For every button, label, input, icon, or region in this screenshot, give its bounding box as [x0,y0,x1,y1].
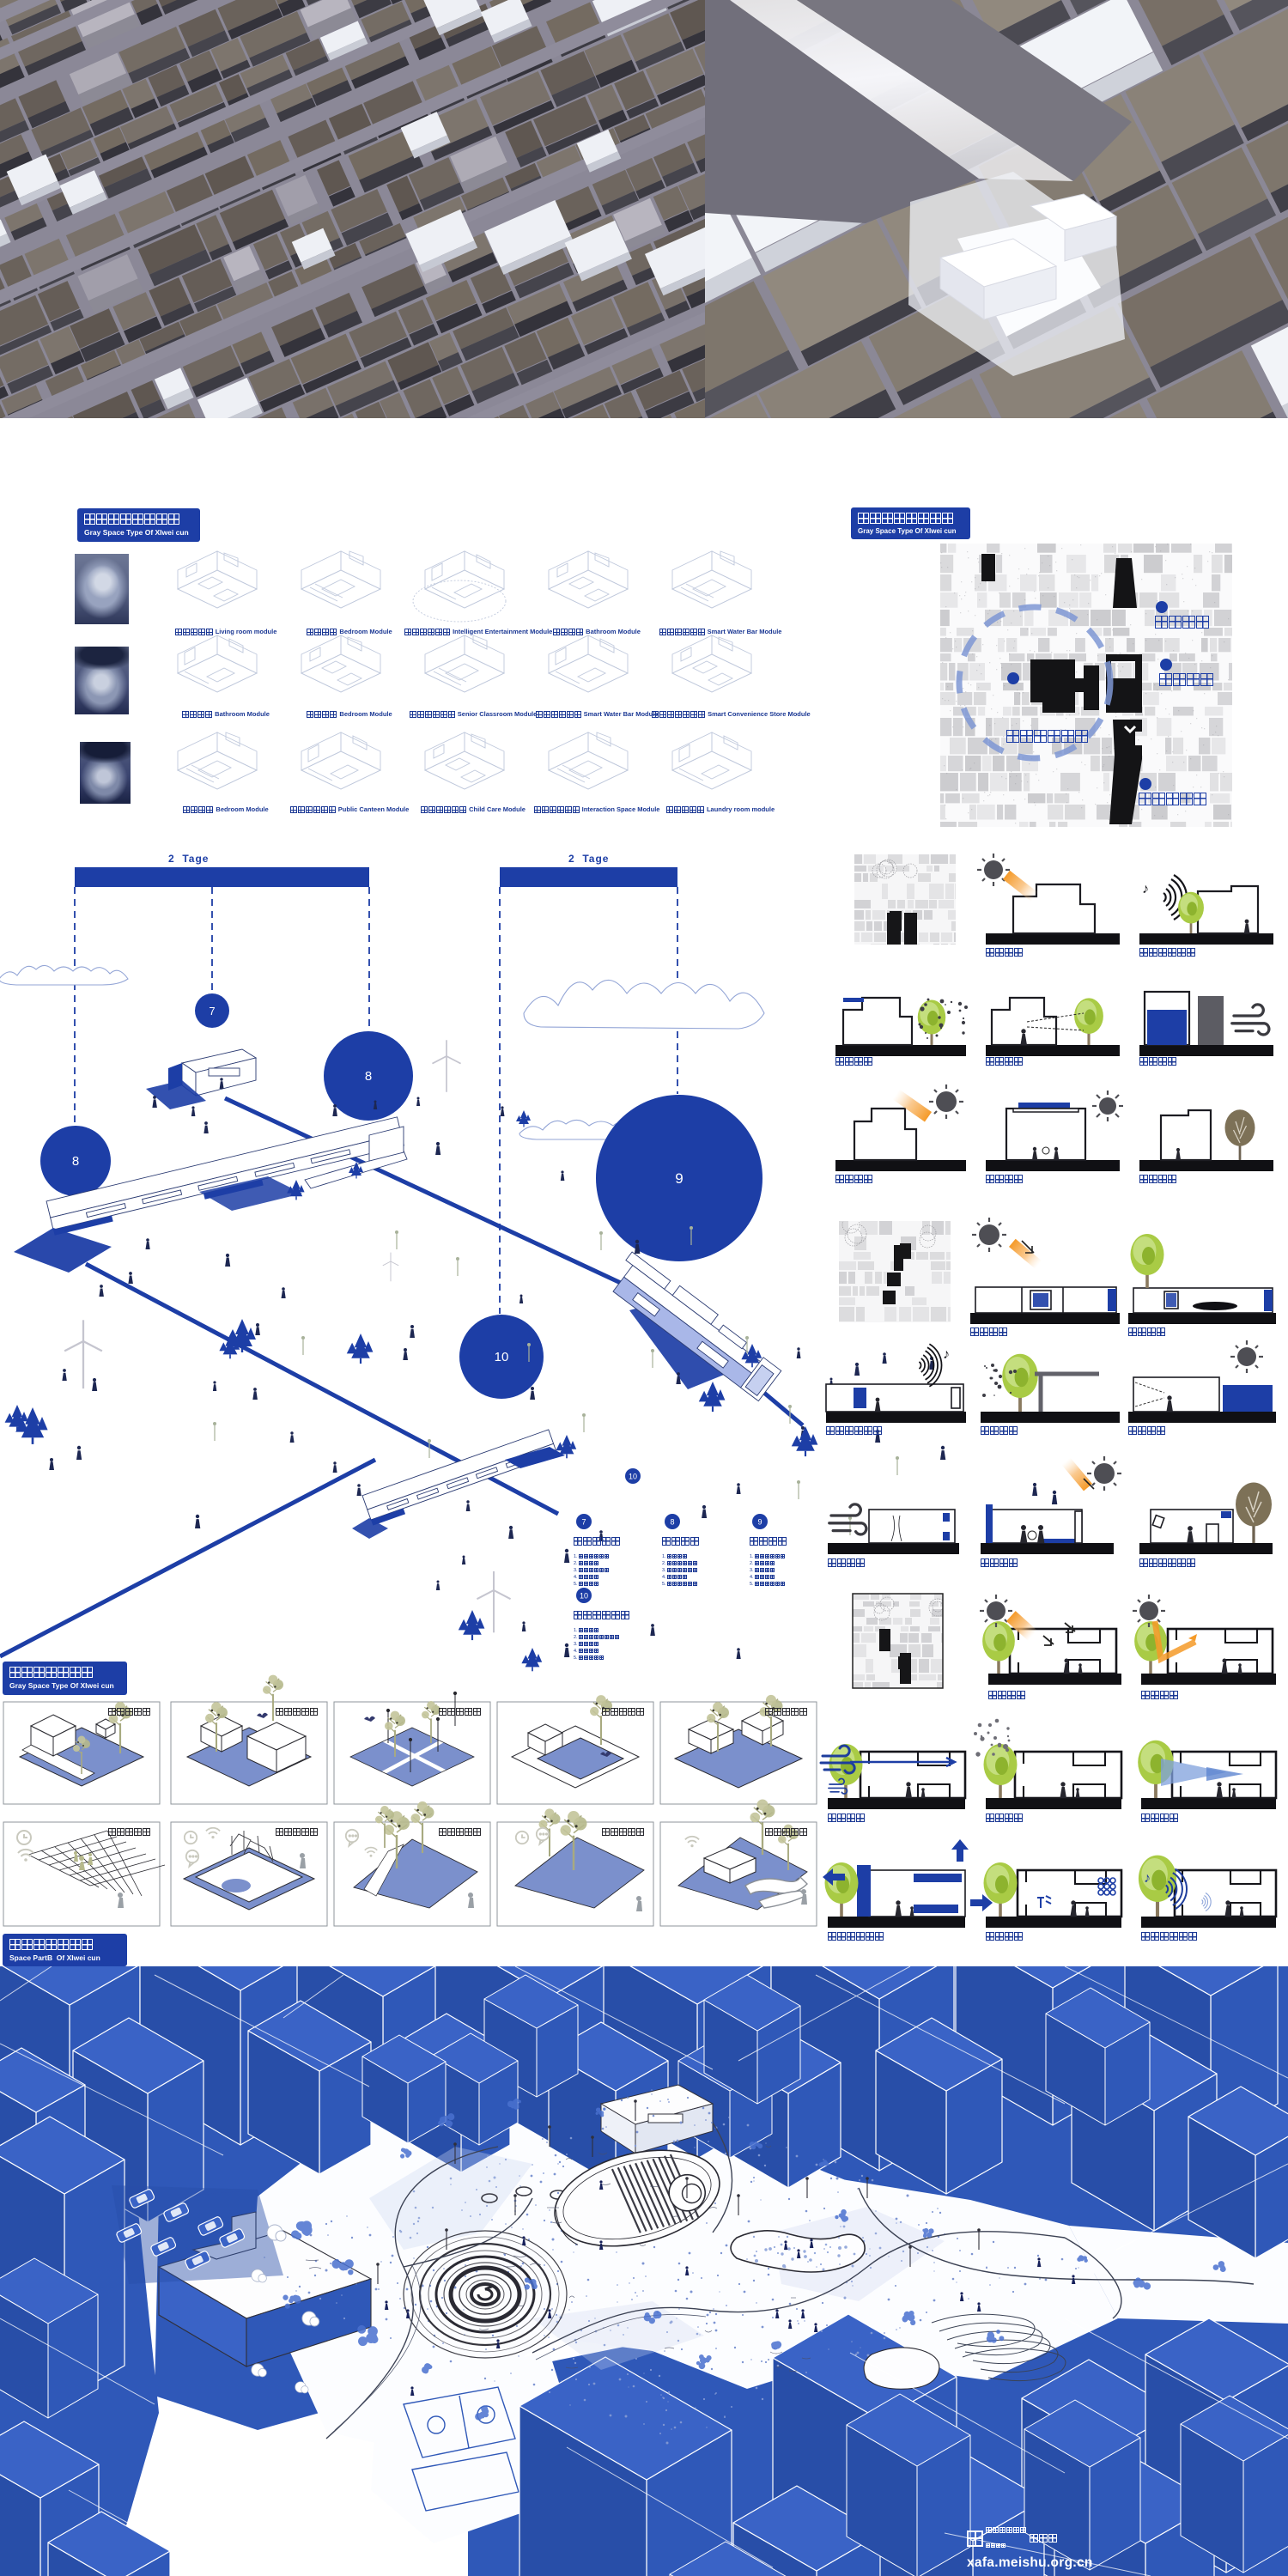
svg-text:9: 9 [675,1170,683,1187]
svg-text:♪: ♪ [943,1347,950,1362]
svg-text:8: 8 [72,1154,79,1169]
svg-text:7: 7 [581,1518,586,1527]
svg-text:♪: ♪ [1142,882,1149,896]
svg-text:10: 10 [629,1473,637,1481]
svg-text:8: 8 [365,1069,372,1084]
svg-text:♪: ♪ [1144,1871,1151,1886]
svg-text:10: 10 [495,1350,509,1364]
svg-text:8: 8 [670,1518,674,1527]
svg-text:7: 7 [209,1005,215,1018]
svg-text:9: 9 [757,1518,762,1527]
svg-text:10: 10 [580,1592,588,1601]
